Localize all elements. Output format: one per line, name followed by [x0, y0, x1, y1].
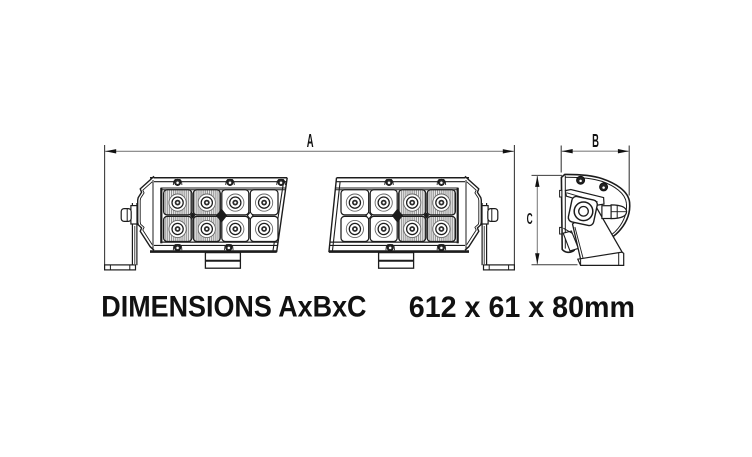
svg-text:C: C	[527, 209, 533, 228]
svg-text:612 x 61 x 80mm: 612 x 61 x 80mm	[409, 292, 635, 324]
svg-text:A: A	[307, 132, 314, 152]
svg-text:DIMENSIONS AxBxC: DIMENSIONS AxBxC	[101, 291, 366, 323]
svg-text:B: B	[592, 132, 599, 152]
